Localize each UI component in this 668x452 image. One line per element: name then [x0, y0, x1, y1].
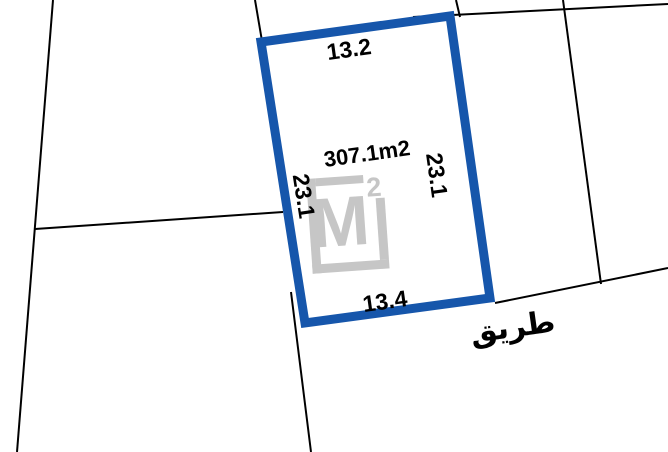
land-plot-figure: M 2 13.2 307.1m2 23.1 23.1 13.4 طريق — [0, 0, 668, 452]
boundary-line-cross — [35, 212, 283, 229]
dimension-label-right: 23.1 — [421, 151, 453, 199]
dimension-label-left: 23.1 — [288, 172, 321, 220]
watermark-frame-right-bar — [376, 198, 389, 260]
road-label: طريق — [468, 304, 557, 351]
watermark-m-letter: M — [308, 181, 372, 263]
road-line — [495, 268, 668, 303]
plot-map-canvas: M 2 13.2 307.1m2 23.1 23.1 13.4 طريق — [0, 0, 668, 452]
area-label: 307.1m2 — [322, 135, 411, 172]
plot-outline — [261, 16, 490, 323]
boundary-line-left — [17, 0, 53, 452]
m2-watermark: M 2 — [306, 172, 390, 274]
watermark-superscript-2: 2 — [365, 172, 382, 203]
dimension-label-top: 13.2 — [325, 33, 373, 65]
boundary-line-right — [563, 0, 601, 284]
boundary-line-top-left-stub — [255, 0, 262, 41]
